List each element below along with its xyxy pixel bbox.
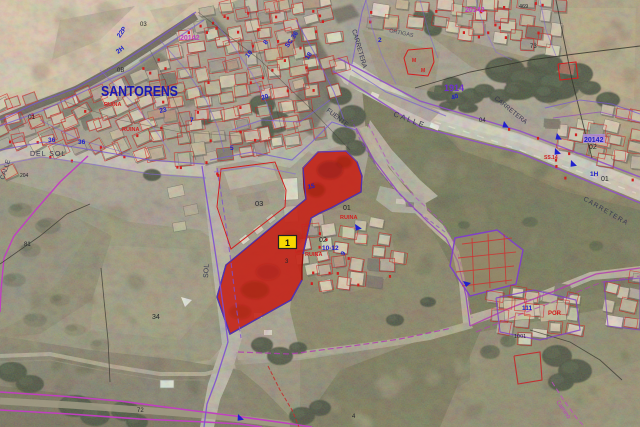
svg-text:36: 36 (78, 139, 86, 146)
svg-text:20142: 20142 (584, 137, 604, 144)
svg-text:7: 7 (190, 117, 194, 124)
svg-text:M: M (412, 58, 416, 64)
svg-text:1H: 1H (590, 171, 599, 178)
svg-text:1: 1 (285, 238, 290, 248)
svg-text:SANTORENS: SANTORENS (101, 83, 178, 100)
svg-text:10-12: 10-12 (322, 245, 339, 252)
svg-text:02: 02 (319, 237, 327, 244)
svg-text:SOL: SOL (203, 264, 211, 278)
svg-text:2: 2 (378, 37, 382, 44)
svg-text:1001: 1001 (514, 334, 526, 340)
svg-text:RUINA: RUINA (305, 252, 322, 258)
svg-text:RUINA: RUINA (104, 102, 121, 108)
svg-text:204: 204 (20, 173, 29, 179)
svg-text:469: 469 (519, 4, 528, 10)
svg-text:01: 01 (601, 176, 609, 183)
svg-text:5: 5 (230, 145, 234, 152)
svg-text:DEL SOL: DEL SOL (30, 151, 66, 158)
svg-text:03: 03 (140, 22, 147, 28)
svg-text:36: 36 (48, 137, 56, 144)
svg-text:20142: 20142 (180, 35, 200, 42)
svg-text:RUINA: RUINA (122, 127, 139, 133)
svg-text:1914: 1914 (444, 83, 464, 93)
svg-text:0B: 0B (117, 68, 124, 74)
svg-text:20142: 20142 (465, 7, 485, 14)
svg-text:01: 01 (343, 205, 351, 212)
svg-text:03: 03 (255, 199, 263, 208)
svg-text:RUINA: RUINA (340, 215, 357, 221)
svg-text:72: 72 (137, 408, 144, 414)
svg-text:34: 34 (152, 314, 160, 321)
svg-text:111: 111 (522, 305, 533, 312)
svg-text:M: M (421, 68, 425, 74)
svg-text:73: 73 (530, 44, 537, 50)
svg-text:02: 02 (589, 144, 597, 151)
svg-text:01: 01 (28, 114, 36, 121)
svg-text:POR: POR (548, 311, 562, 317)
svg-text:SS.14: SS.14 (544, 155, 558, 161)
svg-text:04: 04 (479, 118, 486, 124)
svg-text:81: 81 (24, 242, 31, 248)
